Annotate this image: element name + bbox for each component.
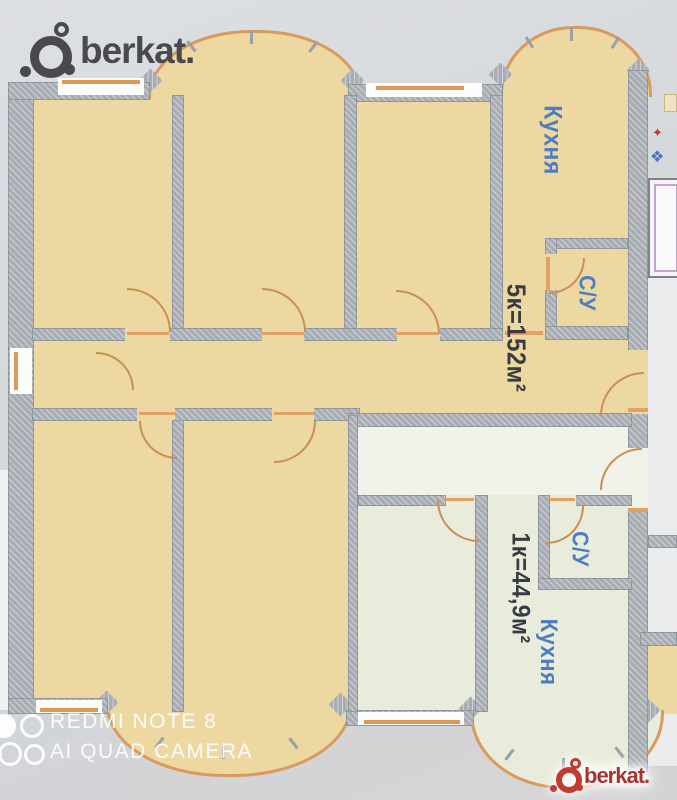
plan-detail-tab xyxy=(664,94,677,112)
door-sill xyxy=(262,332,304,335)
wall-1k-hall xyxy=(358,495,446,506)
berkat-dot xyxy=(54,22,69,37)
wall-room-divider xyxy=(344,95,357,341)
berkat-dot xyxy=(20,66,31,77)
berkat-watermark-top: berkat. xyxy=(18,22,194,80)
label-kitchen-5k: Кухня xyxy=(538,105,567,175)
wall-bathroom-1k-bottom xyxy=(538,578,632,590)
camera-watermark-icon xyxy=(0,742,22,766)
door-sill xyxy=(127,332,169,335)
camera-watermark-icon xyxy=(0,714,16,738)
door-sill xyxy=(547,498,575,501)
red-marker-icon: ✦ xyxy=(652,126,663,139)
wall-outer-left xyxy=(8,82,34,714)
berkat-dot xyxy=(550,785,557,792)
berkat-dot xyxy=(570,758,581,769)
apartment-5k-floor-lower xyxy=(32,420,358,712)
camera-watermark-icon xyxy=(20,714,44,738)
apartment-1k-hall-floor xyxy=(358,427,628,495)
label-area-1k: 1к=44,9м² xyxy=(506,532,535,643)
berkat-logo-icon xyxy=(18,22,80,80)
door-sill-entry-5k xyxy=(628,408,648,412)
label-kitchen-1k: Кухня xyxy=(534,619,562,686)
door-sill xyxy=(139,412,175,415)
window-mullion xyxy=(570,28,573,41)
berkat-logo-text: berkat. xyxy=(584,763,649,789)
camera-watermark-line1: REDMI NOTE 8 xyxy=(50,710,217,734)
wall-party-vertical xyxy=(348,415,358,712)
window-glass-line xyxy=(376,86,464,90)
elevator-shaft xyxy=(648,178,677,278)
floor-plan-photo: ✦ ❖ Кухня С/У 5к=152м² 1к=44,9м² С/У Кух… xyxy=(0,0,677,800)
berkat-dot xyxy=(64,64,75,75)
window-glass-line xyxy=(62,80,140,84)
door-sill xyxy=(396,332,439,335)
wall-room-divider xyxy=(172,420,184,712)
door-sill-entry-1k xyxy=(628,508,648,512)
berkat-watermark-bottom: berkat. xyxy=(548,758,649,794)
berkat-logo-text: berkat. xyxy=(80,30,194,72)
camera-watermark-icon xyxy=(24,744,45,765)
wall-room-divider xyxy=(172,95,184,341)
door-sill xyxy=(546,257,550,291)
window-glass-line xyxy=(364,720,460,724)
label-area-5k: 5к=152м² xyxy=(501,284,532,393)
window-mullion xyxy=(250,31,253,44)
door-sill xyxy=(274,412,314,415)
paper-margin xyxy=(0,470,8,710)
wall-bathroom-5k-bottom xyxy=(545,326,628,340)
camera-watermark-line2: AI QUAD CAMERA xyxy=(50,740,253,764)
wall-party-horizontal xyxy=(348,413,632,427)
elevator-car xyxy=(654,184,677,272)
blue-marker-icon: ❖ xyxy=(650,150,664,166)
wall-adjacent-unit xyxy=(640,632,677,646)
berkat-logo-icon xyxy=(548,758,584,794)
wall-landing-stub xyxy=(648,535,677,548)
label-bathroom-1k: С/У xyxy=(567,531,594,567)
door-sill xyxy=(444,498,474,501)
label-bathroom-5k: С/У xyxy=(574,275,601,311)
window-glass-line xyxy=(14,352,18,390)
wall-bathroom-5k-top xyxy=(545,238,628,249)
berkat-dot xyxy=(576,784,583,791)
